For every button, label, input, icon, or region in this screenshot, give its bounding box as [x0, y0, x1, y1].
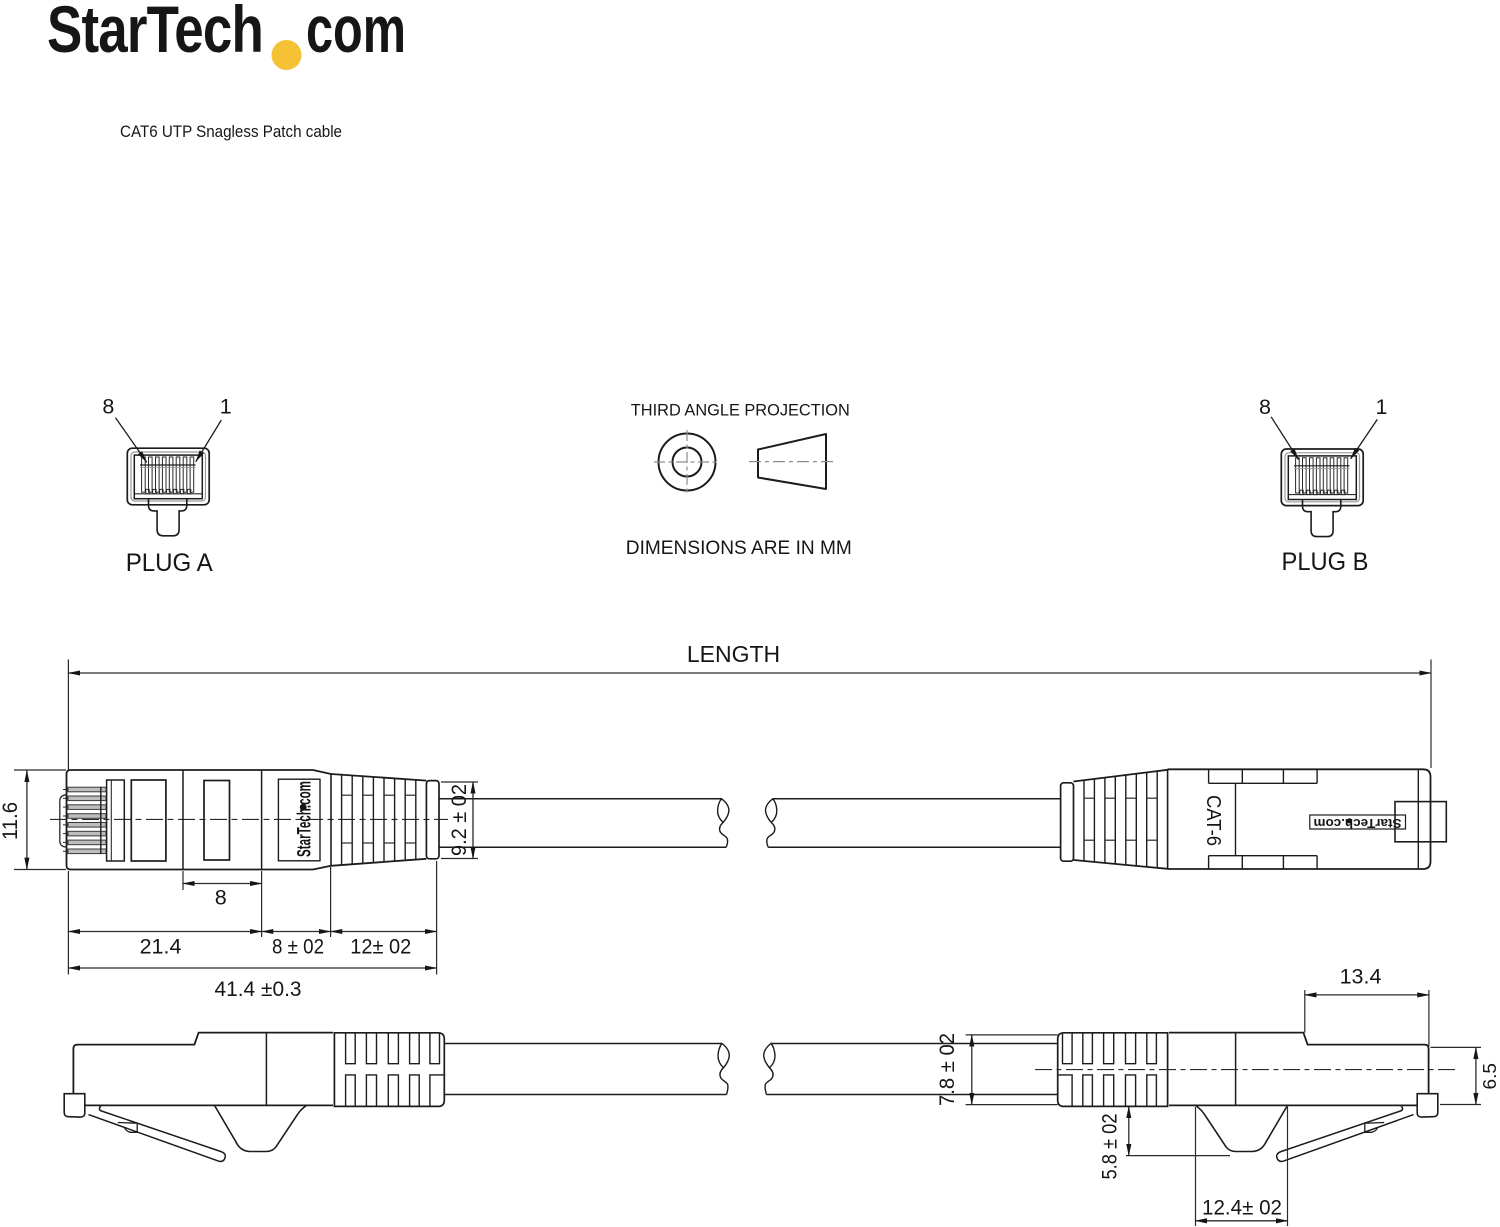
svg-text:PLUG B: PLUG B [1282, 548, 1369, 576]
svg-text:StarTech.com: StarTech.com [295, 781, 316, 857]
svg-text:LENGTH: LENGTH [687, 641, 780, 667]
svg-text:21.4: 21.4 [140, 935, 182, 959]
svg-text:12.4± 02: 12.4± 02 [1202, 1195, 1282, 1219]
svg-text:1: 1 [220, 395, 232, 419]
svg-text:1: 1 [1376, 395, 1388, 419]
svg-text:com: com [306, 0, 406, 66]
svg-text:9.2 ± 02: 9.2 ± 02 [447, 784, 471, 856]
svg-text:CAT-6: CAT-6 [1202, 795, 1224, 846]
svg-text:PLUG A: PLUG A [126, 549, 213, 577]
svg-text:6.5: 6.5 [1480, 1063, 1500, 1090]
svg-text:CAT6 UTP Snagless Patch cable: CAT6 UTP Snagless Patch cable [120, 122, 342, 141]
svg-text:8: 8 [1259, 395, 1271, 419]
svg-text:7.8 ± 02: 7.8 ± 02 [935, 1033, 959, 1106]
svg-text:41.4 ±0.3: 41.4 ±0.3 [215, 977, 302, 1001]
svg-text:8: 8 [215, 886, 227, 910]
svg-text:StarTech.com: StarTech.com [1314, 816, 1402, 831]
svg-text:12± 02: 12± 02 [350, 935, 411, 959]
svg-text:StarTech: StarTech [47, 0, 263, 66]
svg-text:5.8 ± 02: 5.8 ± 02 [1098, 1114, 1122, 1180]
svg-text:13.4: 13.4 [1340, 965, 1382, 989]
svg-text:8 ± 02: 8 ± 02 [272, 935, 324, 959]
svg-text:THIRD ANGLE PROJECTION: THIRD ANGLE PROJECTION [631, 400, 850, 419]
svg-text:8: 8 [102, 395, 114, 419]
svg-text:DIMENSIONS ARE IN MM: DIMENSIONS ARE IN MM [626, 537, 852, 559]
svg-text:11.6: 11.6 [0, 802, 22, 840]
